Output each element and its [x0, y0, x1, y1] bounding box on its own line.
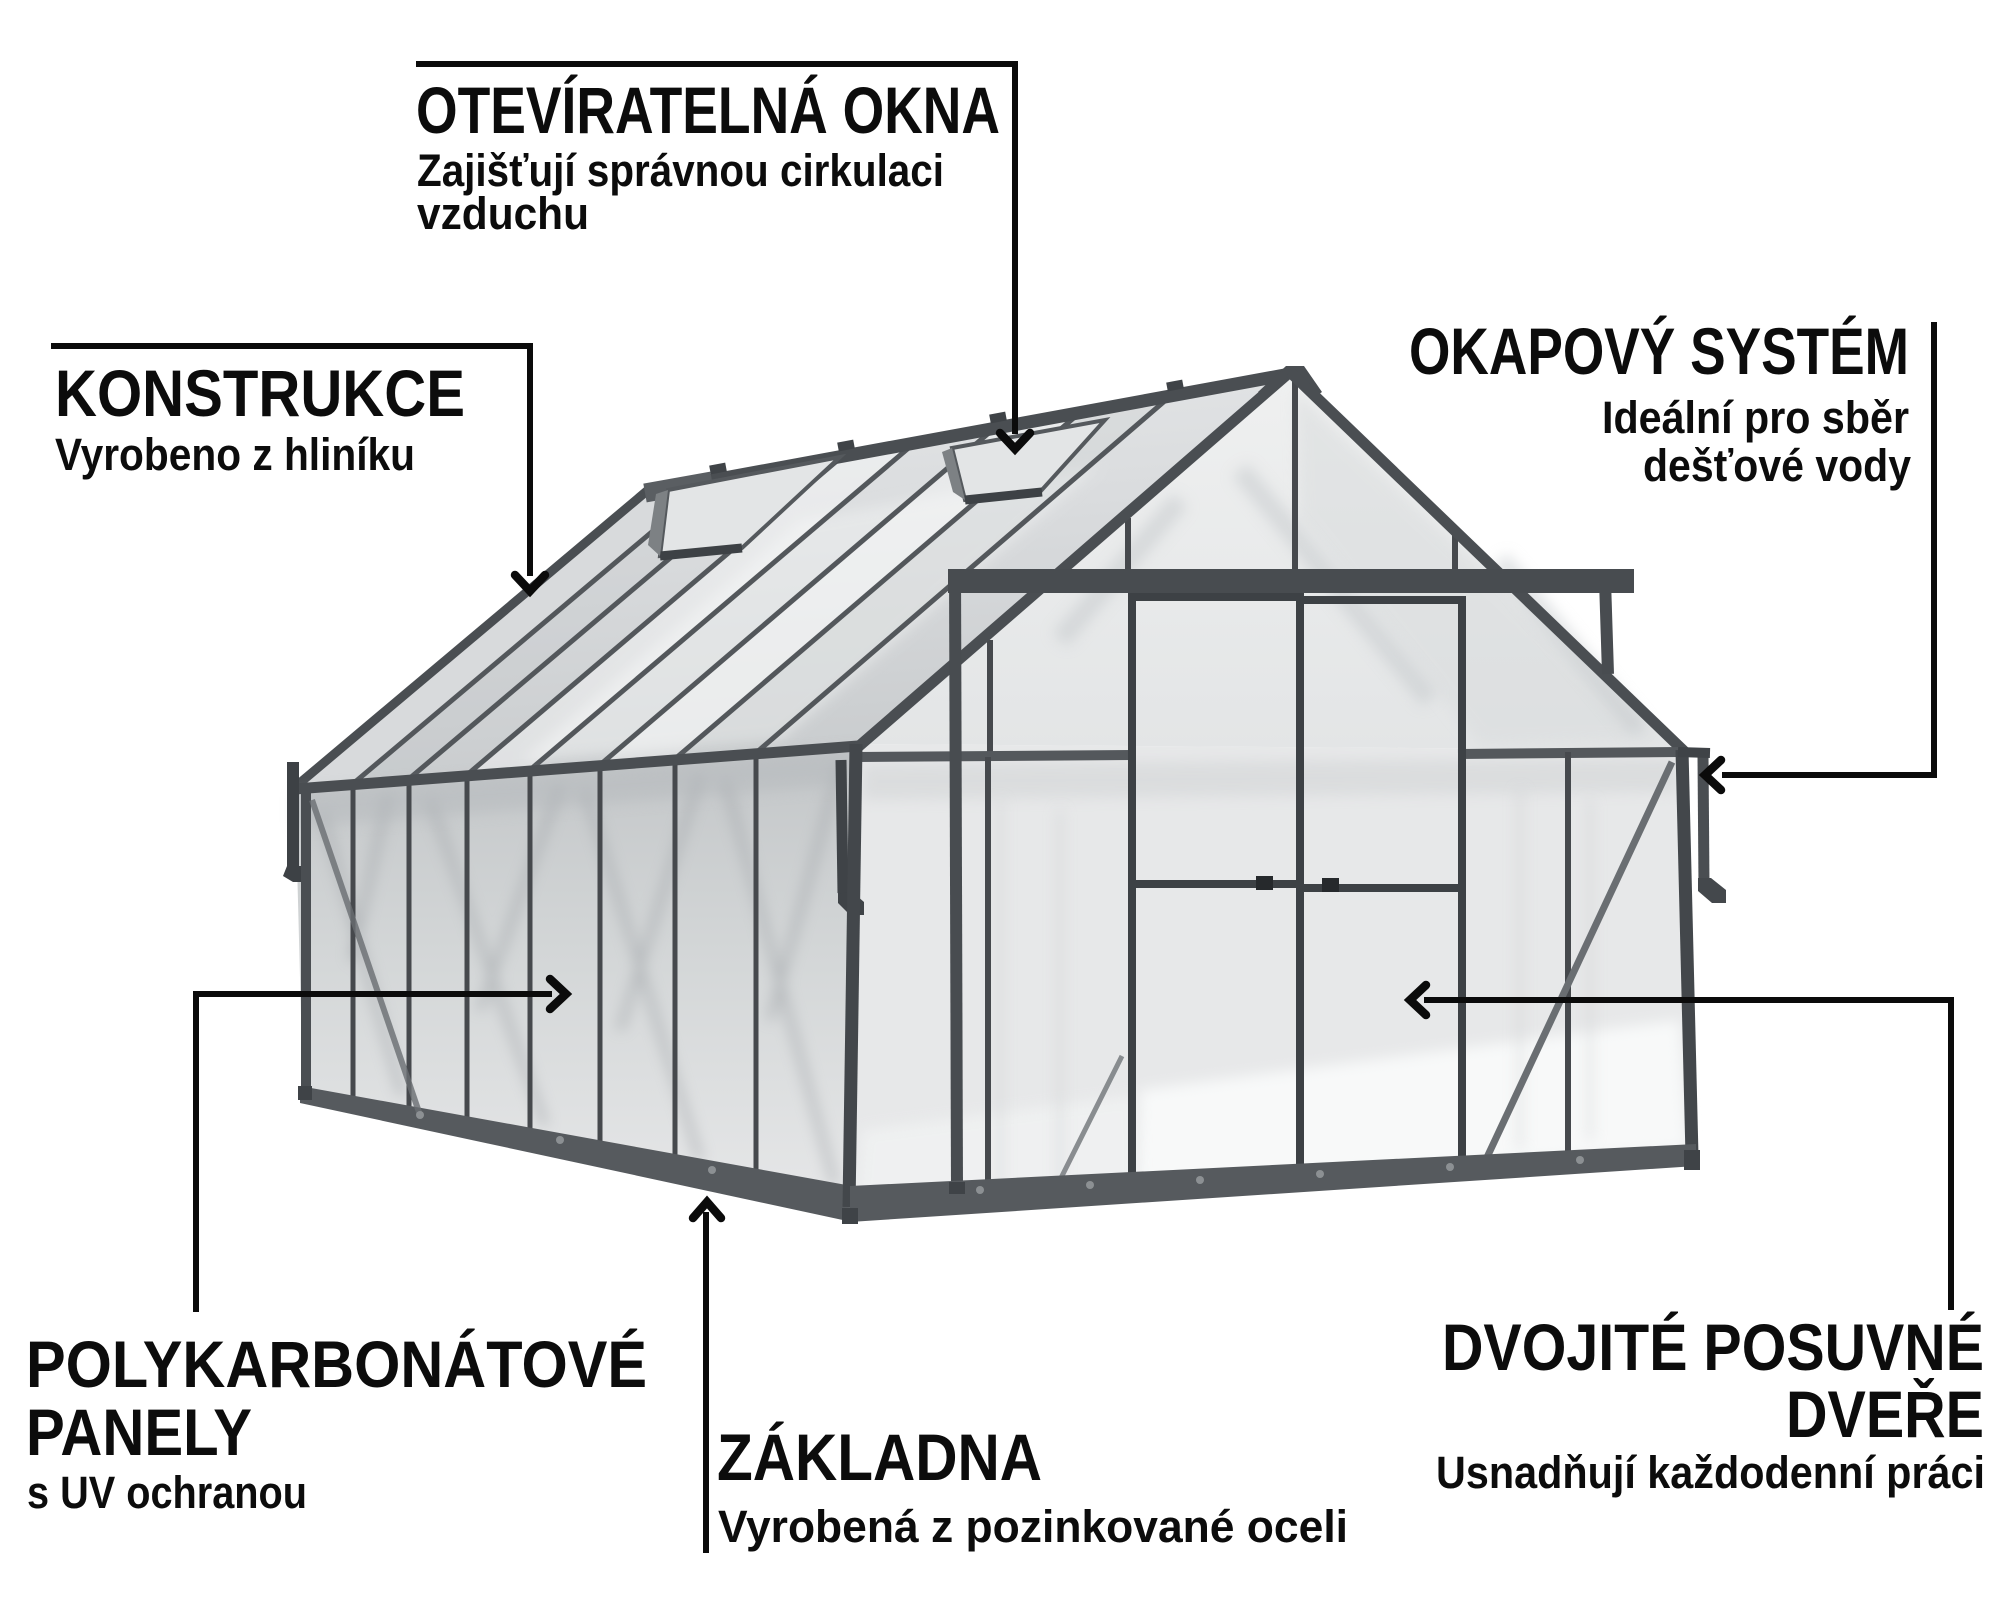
svg-text:ZÁKLADNA: ZÁKLADNA — [717, 1420, 1042, 1494]
svg-text:DVEŘE: DVEŘE — [1786, 1377, 1984, 1451]
svg-text:vzduchu: vzduchu — [417, 188, 589, 239]
svg-text:Vyrobená z pozinkované oceli: Vyrobená z pozinkované oceli — [718, 1501, 1348, 1552]
svg-text:KONSTRUKCE: KONSTRUKCE — [55, 356, 465, 430]
svg-text:OKAPOVÝ SYSTÉM: OKAPOVÝ SYSTÉM — [1409, 314, 1909, 388]
svg-text:Vyrobeno z hliníku: Vyrobeno z hliníku — [55, 429, 415, 480]
svg-text:Ideální pro sběr: Ideální pro sběr — [1602, 392, 1909, 443]
svg-text:DVOJITÉ POSUVNÉ: DVOJITÉ POSUVNÉ — [1442, 1310, 1984, 1384]
svg-text:OTEVÍRATELNÁ OKNA: OTEVÍRATELNÁ OKNA — [416, 73, 1000, 147]
svg-text:POLYKARBONÁTOVÉ: POLYKARBONÁTOVÉ — [26, 1327, 647, 1401]
svg-text:Usnadňují každodenní práci: Usnadňují každodenní práci — [1436, 1447, 1985, 1498]
svg-text:dešťové vody: dešťové vody — [1643, 440, 1911, 491]
svg-text:PANELY: PANELY — [26, 1395, 252, 1469]
svg-text:s UV ochranou: s UV ochranou — [27, 1467, 307, 1518]
